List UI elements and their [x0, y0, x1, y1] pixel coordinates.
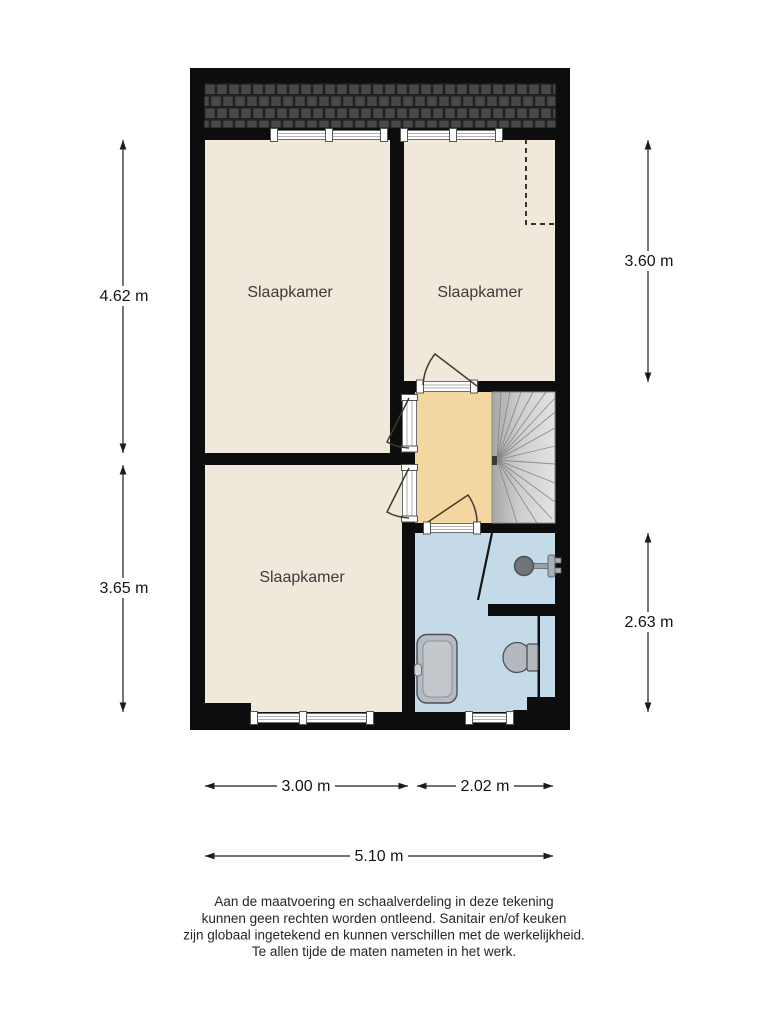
- bedroom-top-right: Slaapkamer: [404, 140, 555, 381]
- dimension-right-top: 3.60 m: [620, 140, 678, 382]
- room-label: Slaapkamer: [259, 569, 345, 586]
- wall-block: [513, 710, 570, 730]
- dimension-bottom-left: 3.00 m: [205, 776, 408, 796]
- dimension-label: 4.62 m: [100, 288, 149, 305]
- dimension-left-top: 4.62 m: [95, 140, 153, 453]
- dimension-right-bottom: 2.63 m: [620, 533, 678, 712]
- window-bathroom: [466, 712, 514, 725]
- toilet-partition-wall: [488, 604, 555, 616]
- room-label: Slaapkamer: [437, 284, 523, 301]
- tap-icon: [415, 664, 422, 676]
- disclaimer-line-4: Te allen tijde de maten nameten in het w…: [252, 944, 516, 959]
- room-label: Slaapkamer: [247, 284, 333, 301]
- dimension-label: 3.60 m: [625, 253, 674, 270]
- window-bottom-left: [251, 712, 374, 725]
- newel-post: [492, 456, 497, 465]
- toilet-icon: [503, 643, 538, 673]
- staircase: [492, 392, 555, 523]
- dimension-bottom-right: 2.02 m: [417, 776, 553, 796]
- shower-tray-icon: [415, 635, 458, 704]
- dimension-bottom-total: 5.10 m: [205, 846, 553, 866]
- bedroom-bottom-left: Slaapkamer: [205, 465, 402, 712]
- bedroom-top-left: Slaapkamer: [205, 140, 390, 453]
- dimension-left-bottom: 3.65 m: [95, 465, 153, 712]
- floor-plan-page: Slaapkamer Slaapkamer Slaapkamer: [0, 0, 768, 1024]
- wall-block: [190, 703, 251, 730]
- dimension-label: 2.63 m: [625, 614, 674, 631]
- dimension-label: 2.02 m: [461, 778, 510, 795]
- bathroom: [415, 533, 571, 730]
- floor-plan-drawing: Slaapkamer Slaapkamer Slaapkamer: [0, 0, 768, 1024]
- window-top-left: [271, 129, 388, 142]
- dimension-label: 5.10 m: [355, 848, 404, 865]
- dimension-label: 3.00 m: [282, 778, 331, 795]
- disclaimer: Aan de maatvoering en schaalverdeling in…: [183, 894, 585, 959]
- disclaimer-line-1: Aan de maatvoering en schaalverdeling in…: [214, 894, 553, 909]
- window-top-right: [401, 129, 503, 142]
- roof-tiles: [204, 83, 556, 128]
- disclaimer-line-2: kunnen geen rechten worden ontleend. San…: [202, 911, 567, 926]
- disclaimer-line-3: zijn globaal ingetekend en kunnen versch…: [183, 928, 585, 943]
- dimension-label: 3.65 m: [100, 580, 149, 597]
- landing: [415, 392, 492, 523]
